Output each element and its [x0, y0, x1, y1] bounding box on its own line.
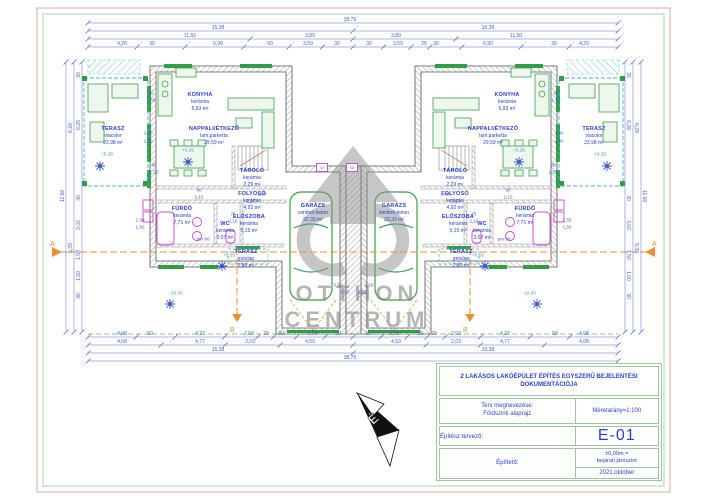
client-label: Építtető:	[440, 449, 576, 478]
small-dim: pm 90	[498, 237, 511, 242]
room-material: kerámia	[167, 99, 233, 106]
small-dim: 1,50	[150, 170, 159, 175]
room-material: viacolor	[561, 133, 627, 140]
small-dim: 1,50	[136, 218, 145, 223]
room-label-konyha: KONYHAkerámia5,93 m²	[474, 92, 540, 112]
level-note-2: bejárati járószint	[597, 458, 637, 464]
small-dim: 1,50	[563, 225, 572, 230]
title-block: 2 LAKÁSOS LAKÓÉPÜLET ÉPÍTÉS EGYSZERŰ BEJ…	[436, 363, 662, 481]
vent-marker-right: U	[346, 163, 358, 172]
room-material: kerámia	[492, 213, 558, 220]
label-layer: OTTHON CENTRUM U U 2 LAKÁSOS LAKÓÉPÜLET …	[0, 0, 707, 500]
level-label: +0,35	[513, 149, 525, 154]
room-name: TÁROLÓ	[219, 168, 285, 175]
watermark-line2: CENTRUM	[237, 307, 477, 333]
room-name: GARÁZS	[280, 203, 346, 210]
room-name: FOLYOSÓ	[219, 191, 285, 198]
room-label-furdo: FÜRDŐkerámia7,71 m²	[149, 206, 215, 226]
room-name: ELŐSZOBA	[425, 214, 491, 221]
room-area: 29,59 m²	[181, 140, 247, 147]
room-material: kerámia	[216, 221, 282, 228]
room-material: simított beton	[280, 210, 346, 217]
small-dim: pm 90	[197, 237, 210, 242]
small-dim: 2,10	[195, 195, 204, 200]
room-name: KONYHA	[167, 92, 233, 99]
doc-title: 2 LAKÁSOS LAKÓÉPÜLET ÉPÍTÉS EGYSZERŰ BEJ…	[439, 366, 659, 396]
room-name: FOLYOSÓ	[422, 191, 488, 198]
small-dim: 90	[148, 91, 153, 96]
room-name: NAPPALI/ÉTKEZŐ	[460, 126, 526, 133]
small-dim: 2,10	[452, 199, 461, 204]
small-dim: 1,50	[563, 218, 572, 223]
room-material: viacolor	[80, 133, 146, 140]
room-name: WC	[192, 221, 258, 228]
small-dim: 3,50	[334, 283, 343, 288]
vent-marker-left: U	[316, 163, 328, 172]
room-area: 22,33 m²	[361, 217, 427, 224]
room-material: lam.parketta	[460, 133, 526, 140]
room-area: 23,98 m²	[80, 140, 146, 147]
room-label-eloszoba: ELŐSZOBAkerámia5,15 m²	[216, 214, 282, 234]
room-label-terasz_kis: TERASZgréslap2,80 m²	[428, 249, 494, 269]
level-label: +0,05	[472, 254, 484, 259]
level-label: ±0,00	[171, 292, 183, 297]
level-label: +0,35	[101, 153, 113, 158]
plan-label: Terv megnevezése:	[481, 403, 533, 411]
room-name: FÜRDŐ	[492, 206, 558, 213]
level-label: +0,05	[223, 254, 235, 259]
small-dim: 1,50	[549, 170, 558, 175]
room-label-nappali: NAPPALI/ÉTKEZŐlam.parketta29,59 m²	[460, 126, 526, 146]
room-name: NAPPALI/ÉTKEZŐ	[181, 126, 247, 133]
room-label-nappali: NAPPALI/ÉTKEZŐlam.parketta29,59 m²	[181, 126, 247, 146]
room-material: kerámia	[474, 99, 540, 106]
room-area: 7,71 m²	[149, 220, 215, 227]
room-material: gréslap	[428, 256, 494, 263]
small-dim: 75	[471, 212, 476, 217]
drawing-sheet: A A B B É 38,7615,3815,3811,503,893,8911…	[0, 0, 707, 500]
room-area: 2,80 m²	[428, 263, 494, 270]
room-label-furdo: FÜRDŐkerámia7,71 m²	[492, 206, 558, 226]
small-dim: 1,50	[552, 98, 561, 103]
small-dim: 90	[553, 91, 558, 96]
room-name: TERASZ	[561, 126, 627, 133]
small-dim: 2,55	[341, 290, 350, 295]
room-material: kerámia	[149, 213, 215, 220]
plan-name: Földszinti alaprajz	[483, 411, 531, 419]
room-area: 4,92 m²	[219, 205, 285, 212]
small-dim: 2,40	[555, 131, 564, 136]
level-label: +0,35	[182, 149, 194, 154]
room-material: kerámia	[192, 228, 258, 235]
small-dim: 2,55	[358, 290, 367, 295]
small-dim: 90	[505, 188, 510, 193]
room-label-eloszoba: ELŐSZOBAkerámia5,15 m²	[425, 214, 491, 234]
small-dim: 2,40	[144, 131, 153, 136]
room-material: simított beton	[361, 210, 427, 217]
room-area: 22,33 m²	[280, 217, 346, 224]
level-label: +0,35	[594, 153, 606, 158]
room-name: TERASZ	[428, 249, 494, 256]
room-material: kerámia	[425, 221, 491, 228]
doc-date: 2021.október	[576, 467, 658, 478]
small-dim: 75	[230, 212, 235, 217]
room-label-garazs: GARÁZSsimított beton22,33 m²	[280, 203, 346, 223]
small-dim: 90	[151, 163, 156, 168]
room-label-terasz_kis: TERASZgréslap2,80 m²	[213, 249, 279, 269]
small-dim: 1,80	[258, 192, 267, 197]
small-dim: 1,50	[136, 225, 145, 230]
room-name: TERASZ	[80, 126, 146, 133]
small-dim: 90	[196, 188, 201, 193]
room-label-terasz_nagy: TERASZviacolor23,98 m²	[561, 126, 627, 146]
room-name: FÜRDŐ	[149, 206, 215, 213]
room-label-garazs: GARÁZSsimított beton22,33 m²	[361, 203, 427, 223]
room-label-tarolo: TÁROLÓkerámia2,29 m²	[422, 168, 488, 188]
small-dim: 1,50	[147, 98, 156, 103]
architect-label: Építész tervező:	[440, 427, 576, 445]
sheet-number: E-01	[576, 427, 658, 445]
room-material: kerámia	[422, 175, 488, 182]
level-label: ±0,00	[524, 292, 536, 297]
room-name: WC	[449, 221, 515, 228]
room-area: 7,71 m²	[492, 220, 558, 227]
room-area: 2,29 m²	[219, 182, 285, 189]
small-dim: 2,10	[470, 219, 479, 224]
room-area: 5,15 m²	[216, 228, 282, 235]
scale-cell: Méretarány=1:100	[576, 399, 658, 423]
small-dim: 2,40	[555, 139, 564, 144]
room-area: 29,59 m²	[460, 140, 526, 147]
room-area: 2,29 m²	[422, 182, 488, 189]
room-material: kerámia	[449, 228, 515, 235]
small-dim: 2,10	[504, 195, 513, 200]
small-dim: 2,10	[247, 199, 256, 204]
room-name: TÁROLÓ	[422, 168, 488, 175]
small-dim: 90	[550, 163, 555, 168]
small-dim: 2,40	[144, 139, 153, 144]
small-dim: 1,80	[441, 192, 450, 197]
room-area: 23,98 m²	[561, 140, 627, 147]
small-dim: 3,50	[365, 283, 374, 288]
room-label-terasz_nagy: TERASZviacolor23,98 m²	[80, 126, 146, 146]
room-name: GARÁZS	[361, 203, 427, 210]
room-material: kerámia	[219, 175, 285, 182]
room-area: 5,93 m²	[474, 106, 540, 113]
room-area: 5,93 m²	[167, 106, 233, 113]
room-area: 5,15 m²	[425, 228, 491, 235]
room-area: 4,92 m²	[422, 205, 488, 212]
room-name: KONYHA	[474, 92, 540, 99]
room-material: lam.parketta	[181, 133, 247, 140]
level-note-1: ±0,00m =	[605, 451, 628, 457]
room-label-tarolo: TÁROLÓkerámia2,29 m²	[219, 168, 285, 188]
room-name: ELŐSZOBA	[216, 214, 282, 221]
small-dim: 2,10	[229, 219, 238, 224]
room-label-konyha: KONYHAkerámia5,93 m²	[167, 92, 233, 112]
room-area: 2,80 m²	[213, 263, 279, 270]
